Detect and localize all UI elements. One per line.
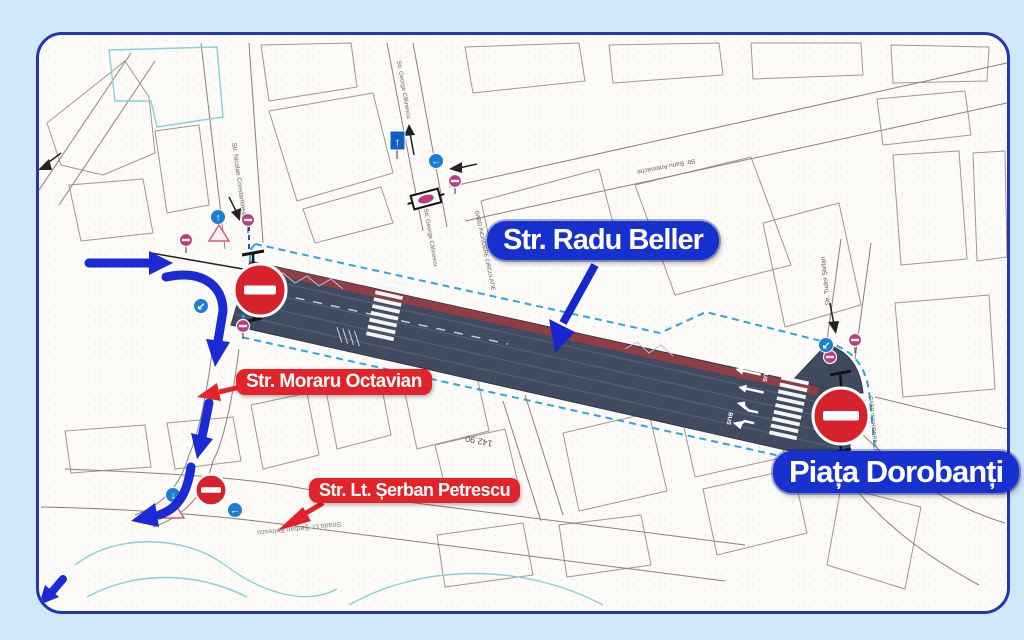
mandatory-direction-sign: ←	[228, 503, 243, 518]
mini-no-entry-sign	[849, 334, 862, 354]
svg-text:←: ←	[431, 157, 441, 168]
svg-text:↙: ↙	[822, 341, 830, 352]
street-lines	[39, 43, 1007, 585]
bus-lane-label-1: BUS	[761, 369, 769, 383]
detour-arrow-5	[39, 579, 63, 605]
label-serban-petrescu: Str. Lt. Șerban Petrescu	[309, 478, 520, 503]
mini-no-entry-sign	[237, 320, 250, 340]
svg-text:←: ←	[230, 506, 240, 517]
closed-road: BUS BUS	[231, 261, 863, 464]
no-entry-sign-east	[813, 388, 869, 444]
label-piata-dorobanti: Piața Dorobanți	[773, 451, 1019, 493]
svg-text:↙: ↙	[197, 302, 205, 313]
mini-no-entry-sign	[449, 175, 462, 195]
street-name-tudor-stefan: Str. Tudor Ștefan	[820, 256, 832, 306]
no-entry-sign-west	[234, 264, 286, 316]
building-outlines	[47, 43, 1007, 589]
pedestrian-sign: ↑	[211, 210, 226, 225]
label-moraru-octavian: Str. Moraru Octavian	[236, 369, 432, 395]
street-name-george-calinescu-south: Str. George Călinescu	[422, 208, 438, 267]
detour-arrow-2	[166, 275, 230, 367]
street-closure-map-page: { "page": { "background": "#cfe9fb" }, "…	[0, 0, 1024, 640]
street-name-george-calinescu-north: Str. George Călinescu	[395, 60, 411, 119]
mandatory-direction-sign: ↙	[819, 338, 834, 353]
one-way-sign: ↑	[390, 131, 405, 159]
mini-no-entry-sign	[180, 234, 193, 254]
elevation-text: 142.90	[464, 433, 493, 449]
map-frame: BUS BUS	[36, 32, 1010, 614]
mandatory-direction-sign: ↙	[194, 299, 209, 314]
arrow-banu-west	[449, 162, 477, 173]
map-canvas: BUS BUS	[39, 35, 1007, 611]
svg-text:↑: ↑	[216, 213, 221, 224]
no-entry-sign-south	[196, 475, 227, 506]
warning-triangle-icon	[209, 225, 229, 241]
mandatory-direction-sign: ←	[429, 154, 444, 169]
label-radu-beller: Str. Radu Beller	[487, 221, 719, 260]
svg-text:↑: ↑	[395, 135, 401, 149]
